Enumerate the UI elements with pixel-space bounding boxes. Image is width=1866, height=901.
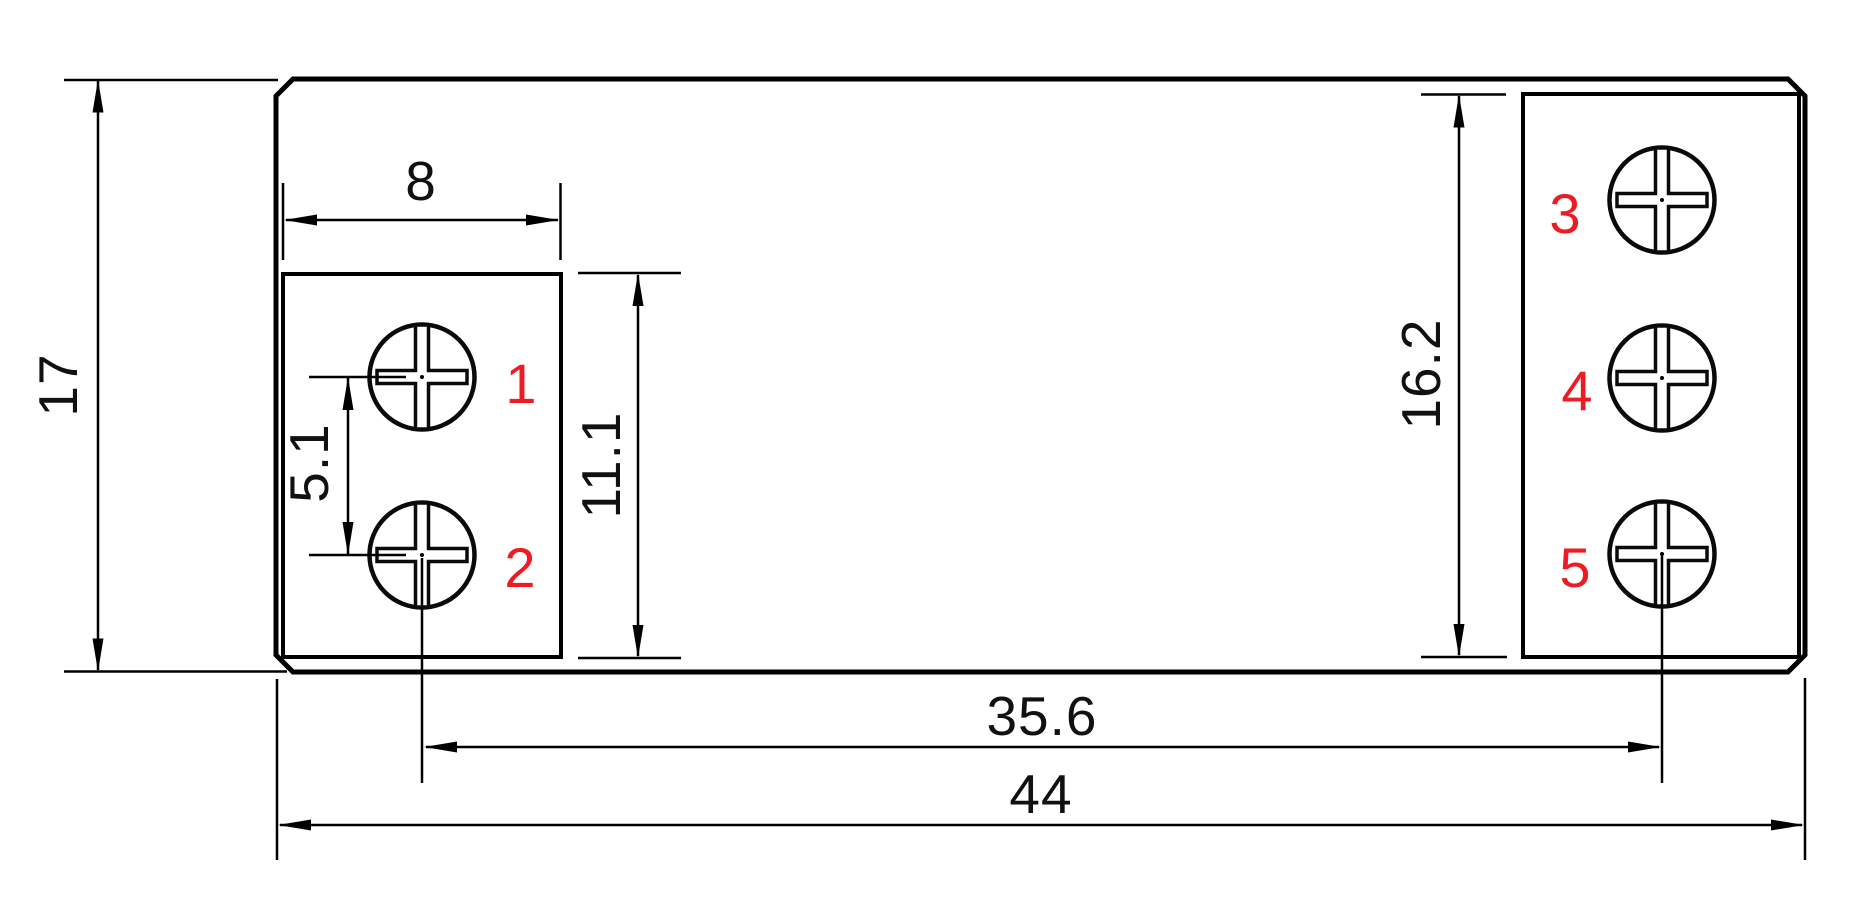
dim-left-block-width-value: 8 [405,150,437,212]
arrowhead-right-icon [1771,820,1804,831]
dim-right-block-height: 16.2 [1390,95,1507,658]
arrowhead-left-icon [284,215,317,226]
screw-4-icon [1610,326,1715,431]
dim-left-block-height-value: 11.1 [570,412,632,519]
terminal-2-label: 2 [504,536,535,599]
terminal-block-drawing: 17 8 5.1 11.1 16.2 [0,0,1866,901]
arrowhead-down-icon [93,639,104,672]
arrowhead-down-icon [1454,624,1465,657]
screw-1-center-dot [420,375,424,379]
dim-overall-height-value: 17 [27,353,89,416]
screw-5-center-dot [1660,552,1664,556]
arrowhead-left-icon [278,820,311,831]
terminal-4-label: 4 [1561,359,1592,422]
terminal-1-label: 1 [505,352,536,415]
arrowhead-left-icon [424,742,457,753]
arrowhead-right-icon [526,215,559,226]
arrowhead-down-icon [633,625,644,658]
arrowhead-right-icon [1628,742,1661,753]
terminal-5-label: 5 [1559,536,1590,599]
screw-4-center-dot [1660,376,1664,380]
dim-left-block-width: 8 [283,150,561,260]
dim-screw-pitch-value: 5.1 [278,423,340,502]
dim-right-block-height-value: 16.2 [1390,318,1452,429]
dim-overall-width-value: 44 [1009,763,1072,825]
screw-3-icon [1610,148,1715,253]
screw-3-center-dot [1660,198,1664,202]
dim-left-block-height: 11.1 [570,273,681,658]
arrowhead-up-icon [633,273,644,306]
arrowhead-up-icon [1454,95,1465,128]
technical-drawing-canvas: 17 8 5.1 11.1 16.2 [0,0,1866,901]
dim-overall-height: 17 [27,80,287,672]
terminal-3-label: 3 [1549,182,1580,245]
screw-2-center-dot [420,553,424,557]
arrowhead-up-icon [343,377,354,410]
arrowhead-down-icon [343,522,354,555]
dim-screw-center-span-value: 35.6 [986,685,1097,747]
arrowhead-up-icon [93,80,104,113]
